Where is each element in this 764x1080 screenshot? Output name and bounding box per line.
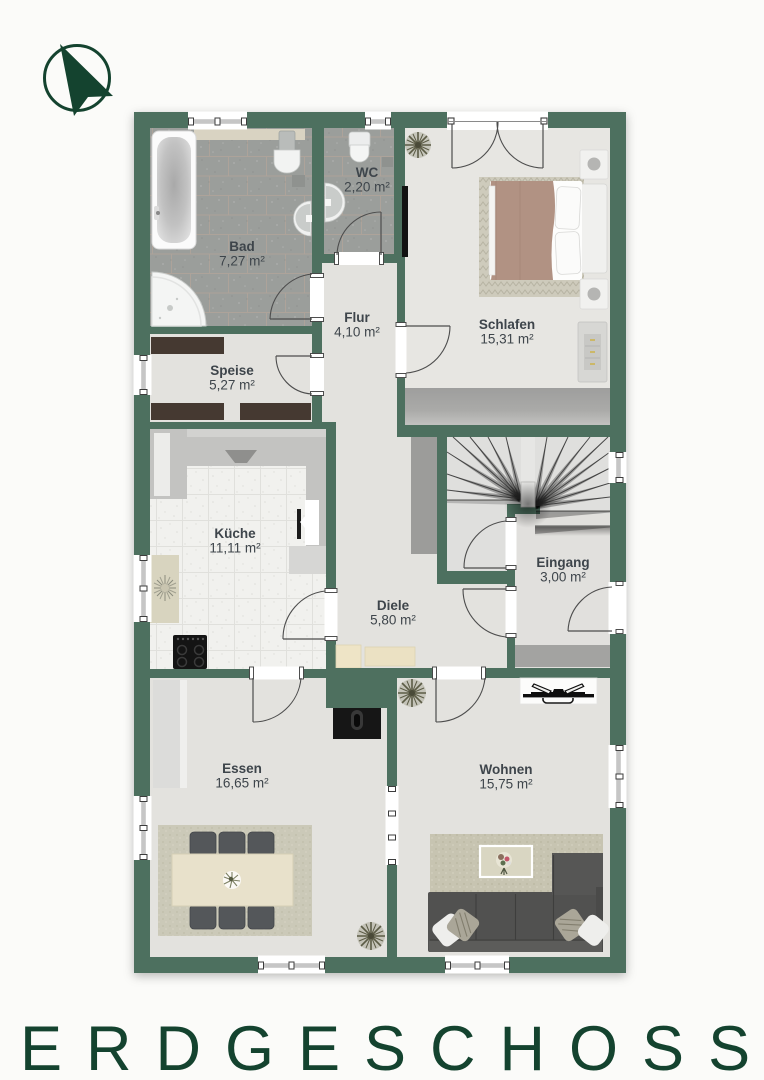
svg-text:Bad: Bad (229, 239, 255, 254)
svg-text:2,20 m²: 2,20 m² (344, 180, 390, 195)
svg-text:4,10 m²: 4,10 m² (334, 325, 380, 340)
svg-text:16,65 m²: 16,65 m² (215, 776, 269, 791)
svg-text:WC: WC (356, 165, 379, 180)
svg-text:15,75 m²: 15,75 m² (479, 777, 533, 792)
svg-text:Eingang: Eingang (536, 555, 589, 570)
svg-text:Flur: Flur (344, 310, 370, 325)
svg-text:Wohnen: Wohnen (480, 762, 533, 777)
svg-text:Diele: Diele (377, 598, 410, 613)
svg-text:Speise: Speise (210, 363, 254, 378)
svg-text:5,27 m²: 5,27 m² (209, 378, 255, 393)
svg-text:5,80 m²: 5,80 m² (370, 613, 416, 628)
svg-text:7,27 m²: 7,27 m² (219, 254, 265, 269)
svg-text:Schlafen: Schlafen (479, 317, 535, 332)
svg-text:Küche: Küche (214, 526, 256, 541)
svg-text:11,11 m²: 11,11 m² (209, 541, 261, 556)
svg-text:Essen: Essen (222, 761, 262, 776)
svg-text:15,31 m²: 15,31 m² (480, 332, 534, 347)
svg-text:3,00 m²: 3,00 m² (540, 570, 586, 585)
